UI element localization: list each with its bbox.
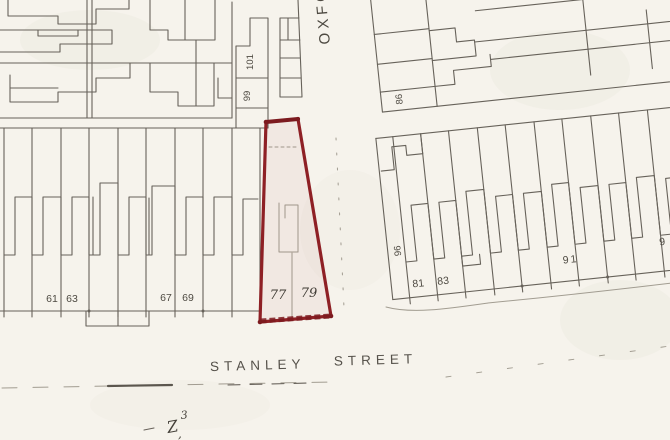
street-label-street: STREET xyxy=(334,351,418,368)
plot-corner-dot xyxy=(258,320,263,325)
plot-corner-dot xyxy=(264,120,269,125)
house-number-91: 91 xyxy=(562,253,579,267)
house-number-77: 77 xyxy=(270,288,287,303)
house-number-63: 63 xyxy=(66,293,78,305)
house-number-83: 83 xyxy=(437,275,450,288)
house-number-69: 69 xyxy=(182,292,194,304)
map-canvas: 101 99 61 63 67 69 OXFO 7 xyxy=(0,0,670,440)
pencil-annotation-3: 3 xyxy=(180,408,188,422)
house-number-81: 81 xyxy=(412,277,425,290)
house-number-101: 101 xyxy=(245,54,256,70)
house-number-79: 79 xyxy=(301,286,318,301)
house-number-61: 61 xyxy=(46,293,58,305)
plot-corner-dot xyxy=(329,314,334,319)
house-number-99: 99 xyxy=(242,91,253,102)
house-number-86: 86 xyxy=(394,93,406,105)
house-number-96: 96 xyxy=(392,245,404,257)
kerb-dark-segment xyxy=(108,385,172,386)
survey-map-scan: 101 99 61 63 67 69 OXFO 7 xyxy=(0,0,670,440)
pencil-annotation-comma: , xyxy=(178,427,182,440)
house-number-67: 67 xyxy=(160,292,172,304)
plot-corner-dot xyxy=(296,117,300,121)
street-label-stanley: STANLEY xyxy=(210,356,306,374)
